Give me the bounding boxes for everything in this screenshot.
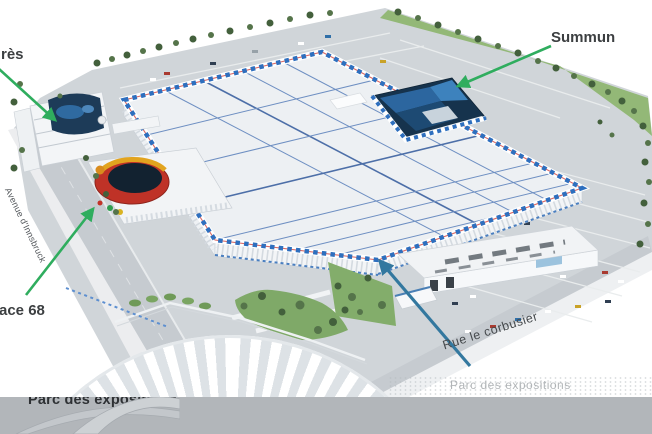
parc-expositions-faint-label: Parc des expositions — [450, 378, 571, 392]
buildings-scene — [0, 0, 652, 434]
green-arrow-summun — [458, 46, 551, 86]
summun-label: Summun — [551, 29, 615, 46]
footer-band: Parc des expositions — [0, 397, 652, 434]
espace68-label: ace 68 — [0, 302, 45, 319]
site-map: Parc des expositions rès Summun ace 68 A… — [0, 0, 652, 434]
water-tower — [98, 116, 106, 124]
dotted-texture-strip: Parc des expositions — [388, 376, 652, 397]
congres-label: rès — [1, 46, 24, 63]
entrance-gate — [395, 287, 437, 309]
footer-swoosh — [0, 397, 180, 434]
